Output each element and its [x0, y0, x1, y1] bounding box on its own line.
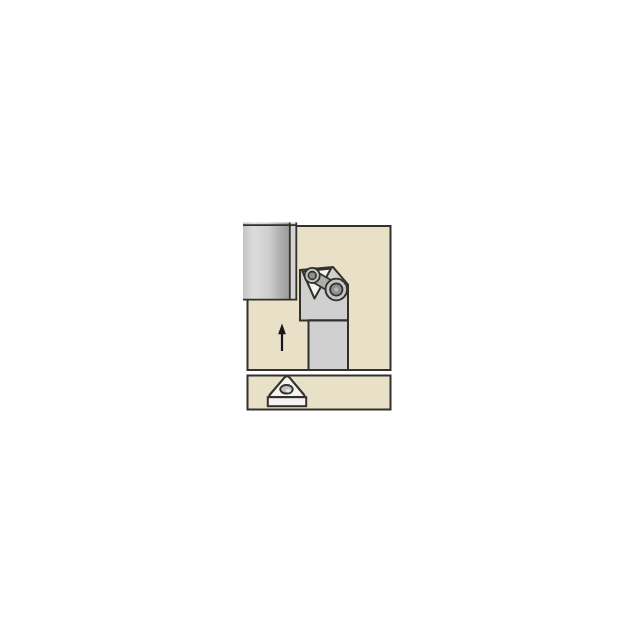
application-diagram: [0, 0, 640, 640]
machined-edge-stripe: [291, 223, 297, 300]
insert-screw-core: [308, 272, 316, 280]
clamp-screw-center: [334, 287, 338, 291]
catalog-figure: [0, 0, 640, 640]
insert-icon-hole-highlight: [286, 389, 291, 392]
insert-icon-hole: [280, 385, 293, 394]
insert-icon-side-face: [268, 397, 306, 406]
workpiece: [243, 223, 290, 300]
toolholder-shank: [309, 321, 349, 371]
